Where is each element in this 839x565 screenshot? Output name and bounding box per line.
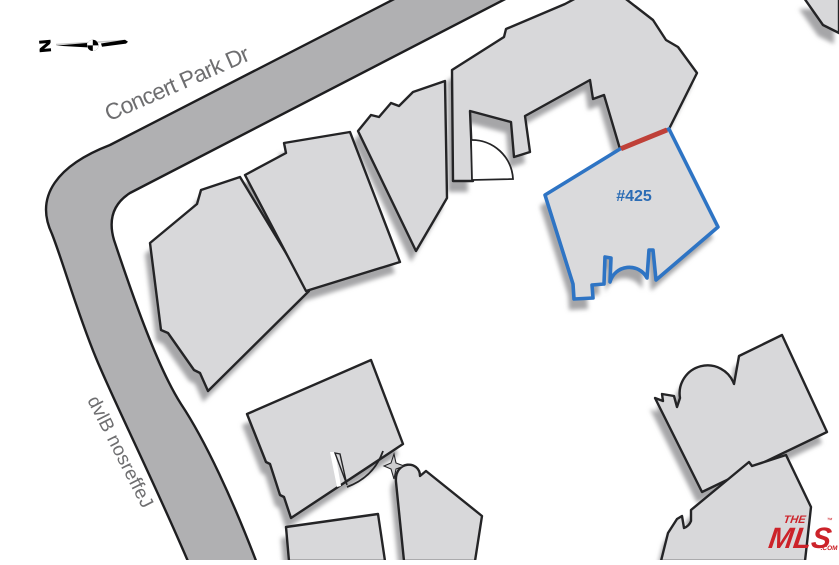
svg-text:.COM: .COM <box>820 545 838 552</box>
svg-text:#425: #425 <box>616 188 652 205</box>
svg-text:™: ™ <box>826 517 833 524</box>
